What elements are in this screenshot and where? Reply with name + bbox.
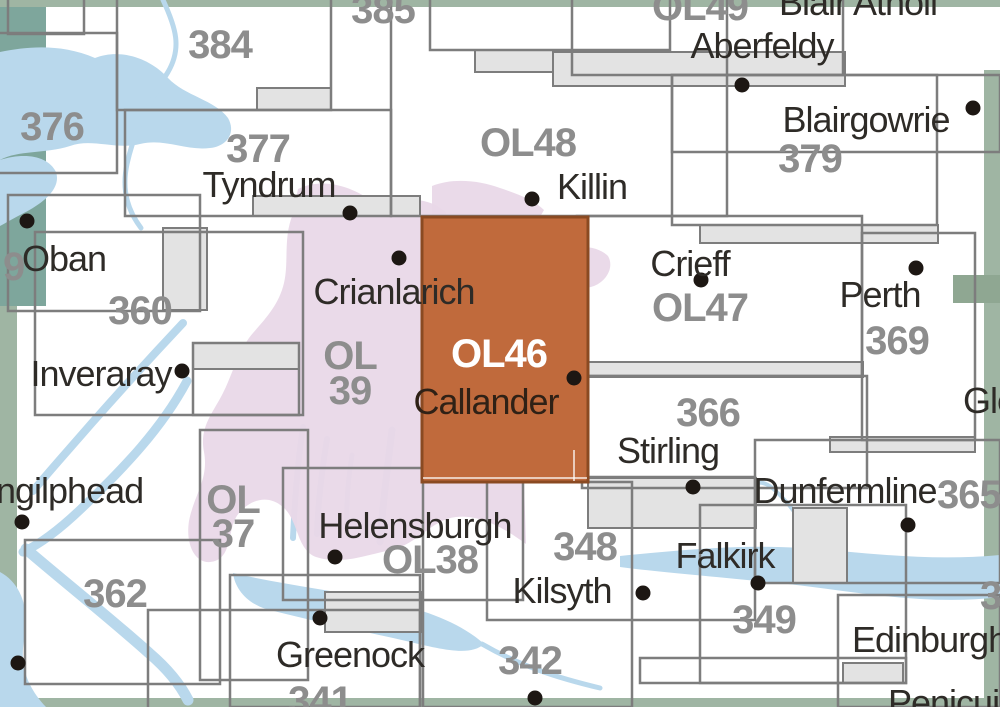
os-sheet-index-map: 385384376377OL48OL49379OL473693609OL39OL…	[0, 0, 1000, 707]
sheet-box-385[interactable]	[430, 0, 670, 50]
map-canvas	[0, 0, 1000, 707]
tab-helensburgh	[325, 592, 421, 632]
sw-sea	[0, 572, 46, 707]
tab-inveraray	[193, 343, 299, 369]
edge-right	[984, 70, 1000, 707]
loch-fyne-sound	[26, 549, 188, 700]
dot-inveraray	[175, 364, 190, 379]
dot-town-southwest	[11, 656, 26, 671]
loch-awe	[33, 323, 183, 491]
sheet-box-362[interactable]	[25, 540, 220, 684]
dot-oban	[20, 214, 35, 229]
tab-384	[257, 88, 331, 110]
dot-crieff	[694, 273, 709, 288]
sheet-box-379[interactable]	[672, 75, 937, 225]
dot-blairgowrie	[966, 101, 981, 116]
selected-sheet-layer	[422, 217, 588, 482]
sea-loch-topleft	[0, 47, 231, 160]
tab-edinburgh	[843, 663, 903, 683]
dot-kilsyth	[636, 586, 651, 601]
dot-dunfermline	[901, 518, 916, 533]
edge-bottom	[0, 698, 1000, 707]
dot-aberfeldy	[735, 78, 750, 93]
tab-stirling	[588, 478, 756, 528]
tab-tyndrum	[253, 196, 420, 216]
dot-crianlarich	[392, 251, 407, 266]
dot-lochgilphead	[15, 515, 30, 530]
sheet-box-366[interactable]	[582, 376, 867, 488]
sheet-box-edinburgh[interactable]	[838, 595, 1000, 707]
dot-perth	[909, 261, 924, 276]
dot-helensburgh	[328, 550, 343, 565]
edge-right-tab	[953, 275, 1000, 303]
edge-top	[0, 0, 1000, 7]
dot-stirling	[686, 480, 701, 495]
dot-killin	[525, 192, 540, 207]
dot-callander	[567, 371, 582, 386]
dot-greenock	[313, 611, 328, 626]
dot-falkirk	[751, 576, 766, 591]
tab-dunfermline	[793, 508, 847, 583]
selected-sheet-ol46[interactable]	[422, 217, 588, 482]
dot-tyndrum	[343, 206, 358, 221]
dot-town-south	[528, 691, 543, 706]
clyde-river	[482, 644, 600, 688]
tab-aberfeldy	[553, 52, 845, 86]
